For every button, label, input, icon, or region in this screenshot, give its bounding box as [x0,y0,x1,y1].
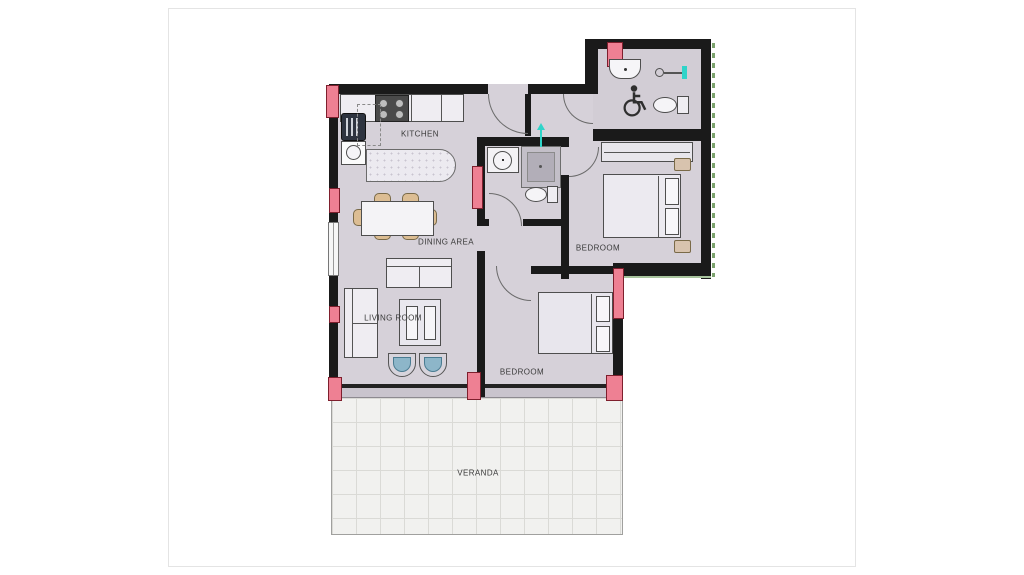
sink-drain [624,68,627,71]
coffee-table-tray [424,306,436,340]
pink-column [613,268,624,319]
wardrobe-rail [604,152,690,153]
tub-chair-seat [424,357,442,372]
coffee-table-tray [406,306,418,340]
blanket-line [658,176,659,237]
sofa [344,288,378,358]
sink-drainer [351,118,353,136]
pink-column [606,375,623,401]
window-mullion [333,223,334,275]
shower-drain [539,165,542,168]
pink-column [467,372,481,400]
wall-bedroom-right-left-b [561,175,569,279]
washer-door [346,145,361,160]
pink-column [328,377,342,401]
veranda-tiles [331,398,623,535]
pink-column [472,166,483,209]
wall-bathroom-bottom [593,129,711,141]
wall-right-upper [701,39,711,279]
counter-divider [411,95,412,121]
wall-top-left [329,84,488,94]
wall-innerbath-bottom-a [477,219,489,226]
blanket-line [591,294,592,353]
floor-plan-page: KITCHEN DINING AREA LIVING ROOM BEDROOM … [0,0,1024,575]
wall-innerbath-top [477,137,569,146]
corner-unit-dashed [357,104,381,146]
coffee-table [399,299,441,346]
pink-column [329,306,340,323]
pillow [596,326,610,352]
window-left [328,222,339,276]
burner [395,99,404,108]
sofa [386,258,452,288]
basin-drain [502,159,504,161]
kitchen-label: KITCHEN [401,130,439,139]
pillow [665,178,679,205]
wall-bedroom-right-bottom [613,263,711,276]
pink-column [329,188,340,213]
wall-bedroom-bottom-top [531,266,613,274]
wall-bathroom-top [585,39,711,49]
pillow [665,208,679,235]
pink-column [326,85,339,118]
toilet-cistern [547,186,558,203]
nightstand [674,158,691,171]
bedroom-right-label: BEDROOM [576,244,620,253]
living-room-label: LIVING ROOM [364,314,422,323]
floor-plan-card: KITCHEN DINING AREA LIVING ROOM BEDROOM … [168,8,856,567]
veranda-label: VERANDA [457,469,498,478]
shower-arrow-line [540,130,542,147]
dining-area-label: DINING AREA [418,238,474,247]
shower-arrow-head [537,123,545,130]
dining-table [361,201,434,236]
wall-top-right [528,84,593,94]
wall-innerbath-bottom-b [523,219,569,226]
toilet-cistern [677,96,689,114]
wheelchair-icon [619,83,649,119]
green-line-under-wall [623,276,711,278]
burner [395,110,404,119]
counter-divider [441,95,442,121]
shower [521,146,561,188]
pillow [596,296,610,322]
toilet [525,187,547,202]
towel-ring [655,68,664,77]
bedroom-bottom-label: BEDROOM [500,368,544,377]
kitchen-island [366,149,456,182]
grab-bar-teal-tip [682,66,687,79]
insulation-dashes-right [712,43,715,277]
nightstand [674,240,691,253]
sofa-cushion-divider [352,323,377,324]
sink-drainer [346,118,348,136]
vanity [487,147,519,173]
bathroom-sink [609,59,641,79]
tub-chair-seat [393,357,411,372]
toilet [653,97,677,113]
sofa-cushion-divider [419,266,420,287]
